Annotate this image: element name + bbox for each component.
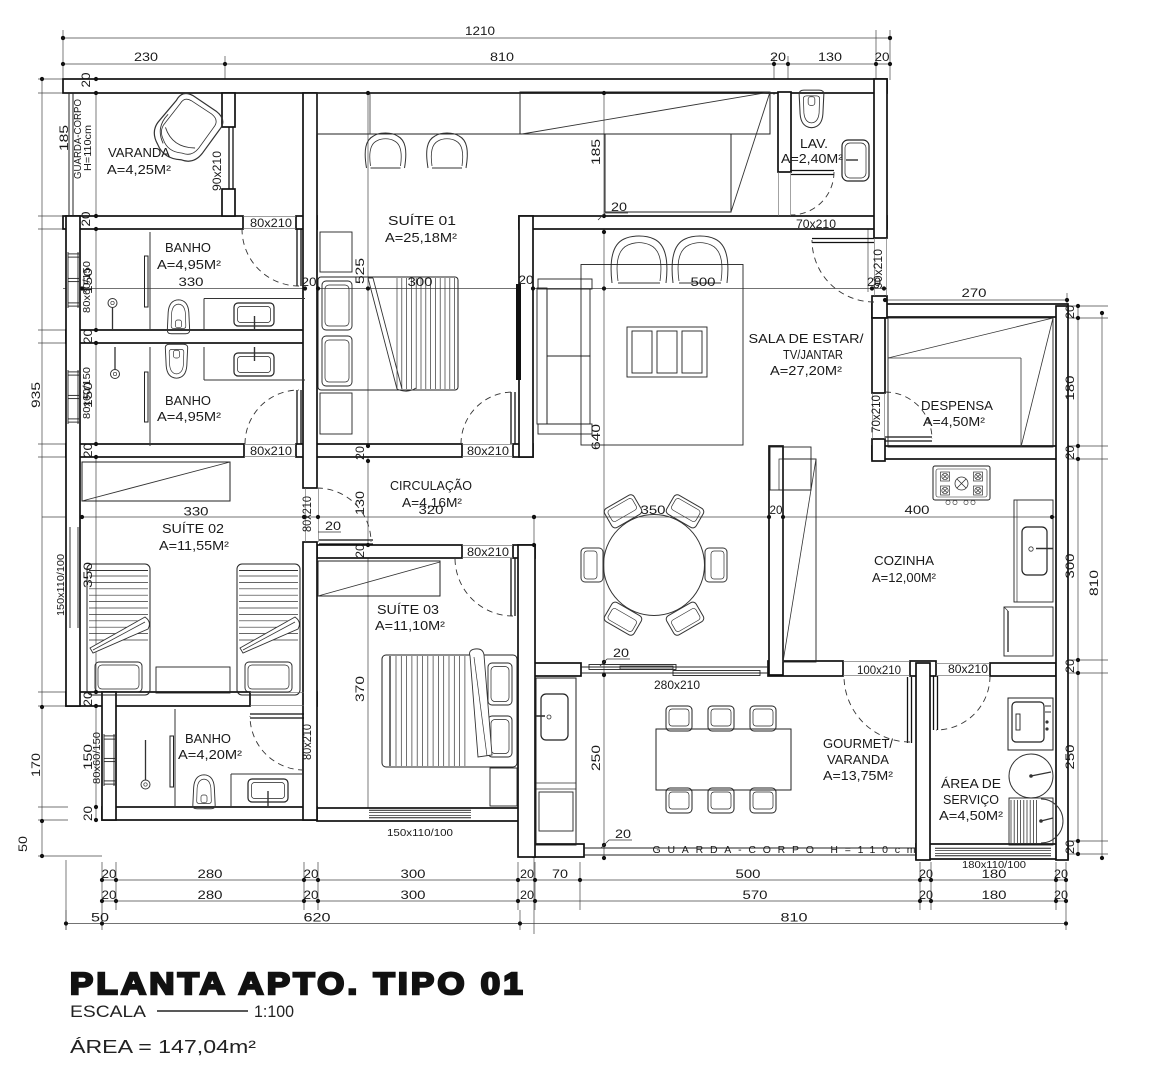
svg-text:570: 570 xyxy=(743,890,768,902)
svg-text:PLANTA APTO. TIPO 01: PLANTA APTO. TIPO 01 xyxy=(70,966,526,1001)
svg-text:20: 20 xyxy=(1065,305,1077,319)
svg-text:1:100: 1:100 xyxy=(254,1002,294,1021)
svg-text:300: 300 xyxy=(408,277,433,289)
svg-text:130: 130 xyxy=(818,52,842,64)
svg-text:A=4,20M²: A=4,20M² xyxy=(178,747,243,762)
svg-text:20: 20 xyxy=(304,869,319,881)
svg-text:810: 810 xyxy=(781,913,808,925)
svg-text:80x210: 80x210 xyxy=(467,547,509,559)
svg-text:70x210: 70x210 xyxy=(871,395,883,433)
svg-text:80x210: 80x210 xyxy=(250,446,292,458)
svg-text:20: 20 xyxy=(520,869,534,881)
svg-text:80x60/150: 80x60/150 xyxy=(91,732,103,784)
svg-text:70: 70 xyxy=(552,869,568,881)
svg-text:A=4,50M²: A=4,50M² xyxy=(923,414,986,429)
svg-text:935: 935 xyxy=(31,382,43,408)
svg-text:500: 500 xyxy=(691,277,716,289)
svg-text:620: 620 xyxy=(304,913,331,925)
svg-text:20: 20 xyxy=(325,521,341,533)
svg-text:20: 20 xyxy=(102,869,117,881)
svg-text:90x210: 90x210 xyxy=(873,249,885,289)
svg-text:H=110cm: H=110cm xyxy=(83,125,94,171)
svg-text:185: 185 xyxy=(59,125,71,151)
svg-text:280x210: 280x210 xyxy=(654,680,700,692)
svg-text:20: 20 xyxy=(102,890,117,902)
svg-text:80x210: 80x210 xyxy=(948,664,988,676)
svg-text:810: 810 xyxy=(1089,570,1101,596)
svg-text:370: 370 xyxy=(355,676,367,702)
svg-text:50: 50 xyxy=(18,836,30,852)
svg-text:A=4,95M²: A=4,95M² xyxy=(157,409,222,424)
svg-text:DESPENSA: DESPENSA xyxy=(921,398,993,413)
svg-text:400: 400 xyxy=(905,505,930,517)
svg-text:180x110/100: 180x110/100 xyxy=(962,859,1026,871)
svg-text:80x210: 80x210 xyxy=(302,496,314,532)
svg-text:350: 350 xyxy=(641,505,666,517)
svg-text:BANHO: BANHO xyxy=(165,240,211,255)
svg-text:COZINHA: COZINHA xyxy=(874,553,934,568)
svg-text:A=11,55M²: A=11,55M² xyxy=(159,538,230,553)
svg-text:90x210: 90x210 xyxy=(212,151,224,191)
svg-text:20: 20 xyxy=(520,890,534,902)
svg-text:350: 350 xyxy=(83,562,95,588)
svg-text:SUÍTE 02: SUÍTE 02 xyxy=(162,521,224,536)
svg-text:20: 20 xyxy=(355,446,367,460)
svg-text:180: 180 xyxy=(1065,376,1077,401)
svg-text:180: 180 xyxy=(982,890,1007,902)
svg-text:ÁREA DE: ÁREA DE xyxy=(941,776,1001,791)
svg-text:280: 280 xyxy=(198,890,223,902)
svg-text:CIRCULAÇÃO: CIRCULAÇÃO xyxy=(390,478,472,493)
svg-text:TV/JANTAR: TV/JANTAR xyxy=(783,347,843,362)
svg-text:20: 20 xyxy=(81,212,93,227)
svg-text:20: 20 xyxy=(613,648,629,660)
svg-text:20: 20 xyxy=(919,890,933,902)
svg-text:20: 20 xyxy=(519,275,534,287)
svg-text:A=11,10M²: A=11,10M² xyxy=(375,618,446,633)
svg-text:A=25,18M²: A=25,18M² xyxy=(385,230,458,245)
svg-text:A=4,25M²: A=4,25M² xyxy=(107,162,172,177)
svg-text:A=4,16M²: A=4,16M² xyxy=(402,495,463,510)
svg-text:20: 20 xyxy=(1065,446,1077,460)
svg-text:BANHO: BANHO xyxy=(165,393,211,408)
svg-text:A=2,40M²: A=2,40M² xyxy=(781,151,844,166)
svg-text:20: 20 xyxy=(615,829,631,841)
svg-text:70x210: 70x210 xyxy=(796,219,836,231)
svg-text:80x210: 80x210 xyxy=(250,218,292,230)
svg-text:SUÍTE 01: SUÍTE 01 xyxy=(388,213,456,228)
svg-text:A=12,00M²: A=12,00M² xyxy=(872,570,937,585)
svg-text:20: 20 xyxy=(1065,659,1077,673)
svg-text:20: 20 xyxy=(611,202,627,214)
svg-text:VARANDA: VARANDA xyxy=(827,752,889,767)
svg-text:20: 20 xyxy=(304,890,319,902)
svg-text:80x210: 80x210 xyxy=(467,446,509,458)
svg-text:20: 20 xyxy=(83,806,95,821)
svg-text:ESCALA: ESCALA xyxy=(70,1002,147,1021)
svg-text:A=13,75M²: A=13,75M² xyxy=(823,768,894,783)
svg-text:SALA DE ESTAR/: SALA DE ESTAR/ xyxy=(749,331,864,346)
svg-text:500: 500 xyxy=(736,869,761,881)
svg-text:80x210: 80x210 xyxy=(302,724,314,760)
svg-text:100x210: 100x210 xyxy=(857,665,901,677)
svg-text:20: 20 xyxy=(770,505,783,517)
svg-text:SERVIÇO: SERVIÇO xyxy=(943,792,999,807)
svg-text:330: 330 xyxy=(179,277,204,289)
svg-text:A=4,95M²: A=4,95M² xyxy=(157,257,222,272)
svg-text:270: 270 xyxy=(962,288,987,300)
svg-text:20: 20 xyxy=(83,692,95,707)
svg-text:20: 20 xyxy=(81,73,93,88)
svg-text:VARANDA: VARANDA xyxy=(108,145,170,160)
svg-text:A=27,20M²: A=27,20M² xyxy=(770,363,843,378)
svg-text:250: 250 xyxy=(1065,745,1077,770)
svg-text:20: 20 xyxy=(1054,890,1068,902)
svg-text:A=4,50M²: A=4,50M² xyxy=(939,808,1004,823)
svg-text:20: 20 xyxy=(770,52,786,64)
svg-text:525: 525 xyxy=(355,258,367,284)
svg-text:20: 20 xyxy=(355,544,367,558)
svg-text:130: 130 xyxy=(355,491,367,515)
svg-text:640: 640 xyxy=(591,424,603,450)
svg-text:GOURMET/: GOURMET/ xyxy=(823,736,893,751)
svg-text:150x110/100: 150x110/100 xyxy=(55,554,67,616)
svg-text:810: 810 xyxy=(490,52,514,64)
svg-text:250: 250 xyxy=(591,745,603,771)
svg-text:20: 20 xyxy=(83,443,95,458)
svg-text:20: 20 xyxy=(1065,840,1077,854)
svg-text:ÁREA = 147,04m²: ÁREA = 147,04m² xyxy=(70,1037,256,1057)
svg-text:150x110/100: 150x110/100 xyxy=(387,827,453,839)
svg-text:80x60/150: 80x60/150 xyxy=(81,261,93,313)
svg-text:BANHO: BANHO xyxy=(185,731,231,746)
svg-text:330: 330 xyxy=(184,507,209,519)
svg-text:170: 170 xyxy=(31,753,43,777)
svg-text:20: 20 xyxy=(83,329,95,344)
svg-text:LAV.: LAV. xyxy=(800,136,828,151)
svg-text:20: 20 xyxy=(302,277,317,289)
svg-text:1210: 1210 xyxy=(465,26,495,38)
svg-text:300: 300 xyxy=(401,869,426,881)
svg-text:80x60/150: 80x60/150 xyxy=(81,367,93,419)
svg-text:185: 185 xyxy=(591,139,603,165)
svg-text:230: 230 xyxy=(134,52,158,64)
svg-text:50: 50 xyxy=(91,913,109,925)
svg-text:20: 20 xyxy=(1054,869,1068,881)
svg-text:280: 280 xyxy=(198,869,223,881)
svg-text:20: 20 xyxy=(919,869,933,881)
svg-text:SUÍTE 03: SUÍTE 03 xyxy=(377,602,439,617)
svg-text:300: 300 xyxy=(1065,554,1077,579)
svg-text:300: 300 xyxy=(401,890,426,902)
svg-text:20: 20 xyxy=(875,52,890,64)
